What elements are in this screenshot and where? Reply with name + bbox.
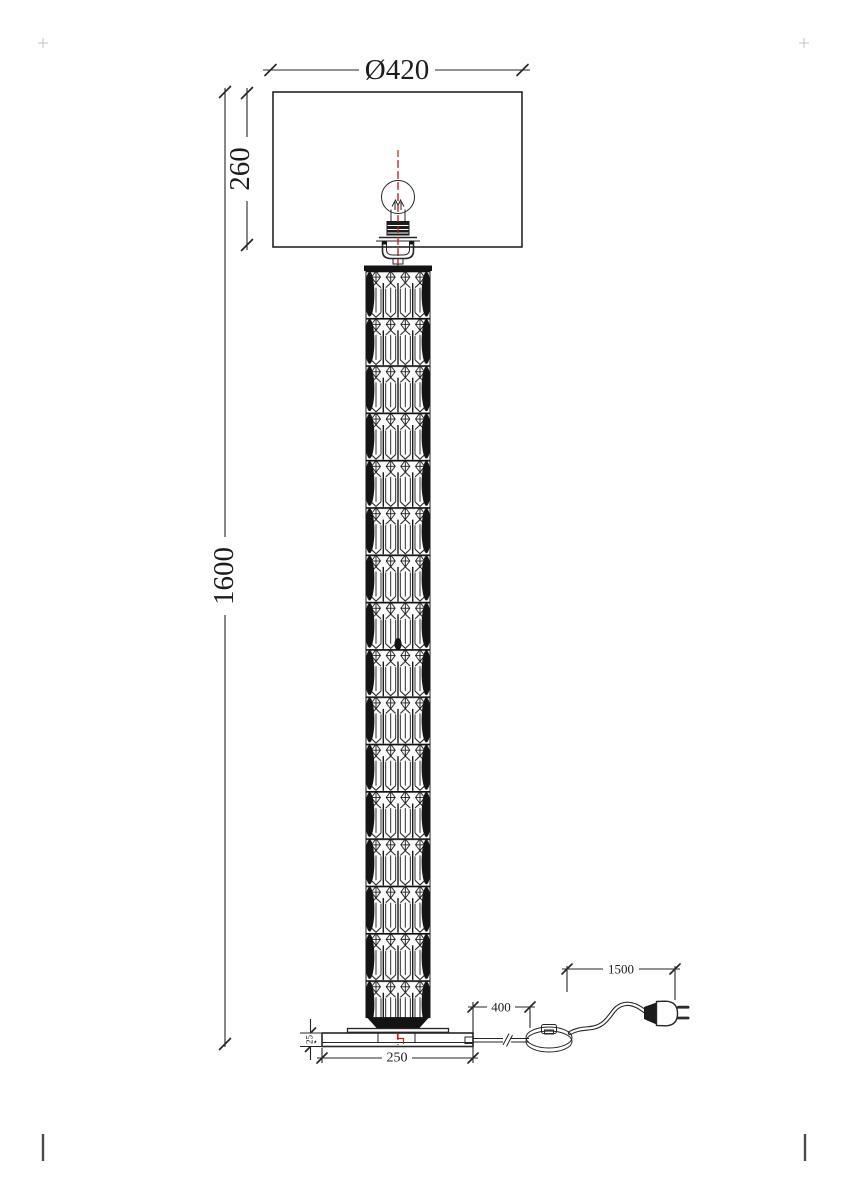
crystal-column — [348, 266, 449, 1033]
dim-shade-diameter-label: Ø420 — [365, 54, 429, 86]
plug-pin-top — [677, 1006, 690, 1009]
crop-mark-top-right — [799, 38, 809, 48]
plug-pin-bottom — [677, 1017, 690, 1020]
dim-base-thickness-label: 25 — [305, 1035, 315, 1045]
dim-base-width-label: 250 — [387, 1051, 408, 1066]
cord-break-symbol — [503, 1034, 513, 1047]
lamp-technical-drawing: Ø420 260 1600 — [0, 0, 848, 1200]
dim-switch-to-plug-label: 1500 — [608, 962, 634, 977]
dim-base-thickness: 25 — [300, 1019, 321, 1060]
dim-total-height: 1600 — [208, 87, 240, 1050]
column-flange — [348, 1029, 449, 1033]
dim-total-height-label: 1600 — [208, 547, 240, 605]
switch-button — [542, 1025, 557, 1034]
dim-cord-to-switch: 400 — [468, 1000, 535, 1029]
power-plug — [644, 1001, 690, 1026]
dim-shade-height-label: 260 — [224, 147, 256, 191]
crop-mark-top-left — [38, 38, 48, 48]
foot-switch — [526, 1025, 572, 1053]
drawing-sheet: Ø420 260 1600 — [0, 0, 848, 1200]
dim-shade-diameter: Ø420 — [263, 54, 530, 86]
column-center-knob — [394, 638, 401, 650]
dim-cord-to-switch-label: 400 — [491, 1000, 511, 1015]
dim-switch-to-plug: 1500 — [562, 962, 680, 1001]
dim-shade-height: 260 — [224, 88, 256, 251]
